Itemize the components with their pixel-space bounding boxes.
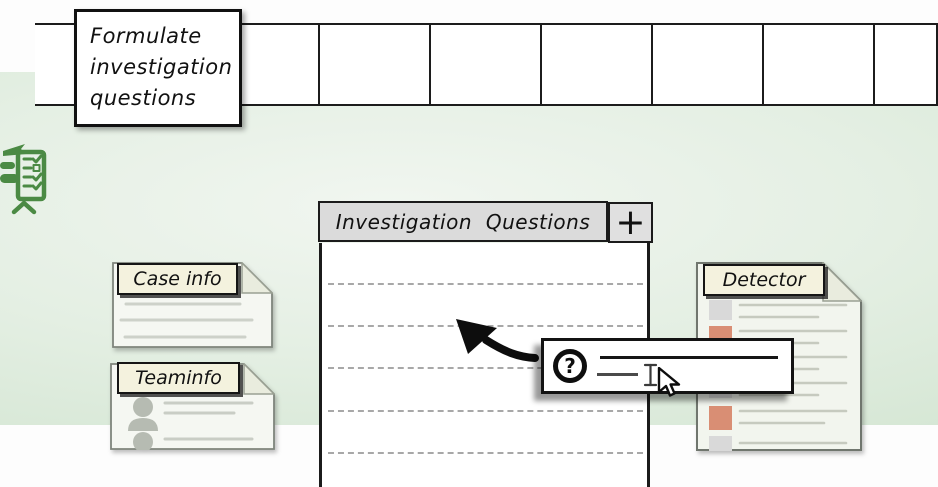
folded-corner bbox=[242, 263, 272, 293]
process-step-cell[interactable] bbox=[431, 25, 542, 104]
detector-label: Detector bbox=[703, 264, 825, 296]
step-note: Formulate investigation questions bbox=[74, 9, 242, 127]
process-step-cell[interactable] bbox=[764, 25, 875, 104]
question-mark-icon: ? bbox=[553, 349, 587, 383]
note-line: Formulate bbox=[90, 21, 235, 52]
mouse-pointer-icon bbox=[657, 367, 683, 401]
storyboard-canvas: Formulate investigation questions bbox=[0, 0, 938, 487]
folded-corner bbox=[823, 263, 861, 301]
note-line: investigation bbox=[90, 52, 235, 83]
process-step-cell[interactable] bbox=[542, 25, 653, 104]
process-step-cell[interactable] bbox=[875, 25, 938, 104]
question-input[interactable] bbox=[600, 356, 778, 359]
note-line: questions bbox=[90, 83, 235, 114]
team-info-label: Teaminfo bbox=[117, 362, 240, 394]
questions-panel-header: Investigation Questions bbox=[318, 201, 608, 242]
process-step-cell[interactable] bbox=[320, 25, 431, 104]
question-input-popup: ? bbox=[541, 338, 794, 394]
status-square bbox=[709, 300, 732, 320]
ruled-line bbox=[328, 283, 643, 285]
status-square bbox=[709, 406, 732, 430]
checklist-clipboard-icon bbox=[0, 142, 48, 216]
ruled-line bbox=[328, 452, 643, 454]
ruled-line bbox=[328, 410, 643, 412]
status-square bbox=[709, 436, 732, 451]
annotation-arrow-icon bbox=[445, 305, 555, 375]
add-question-button[interactable]: + bbox=[608, 202, 653, 243]
placeholder-line bbox=[597, 373, 638, 376]
case-info-label: Case info bbox=[117, 263, 238, 295]
text-cursor-icon bbox=[643, 363, 658, 387]
process-step-cell[interactable] bbox=[653, 25, 764, 104]
folded-corner bbox=[244, 364, 274, 394]
